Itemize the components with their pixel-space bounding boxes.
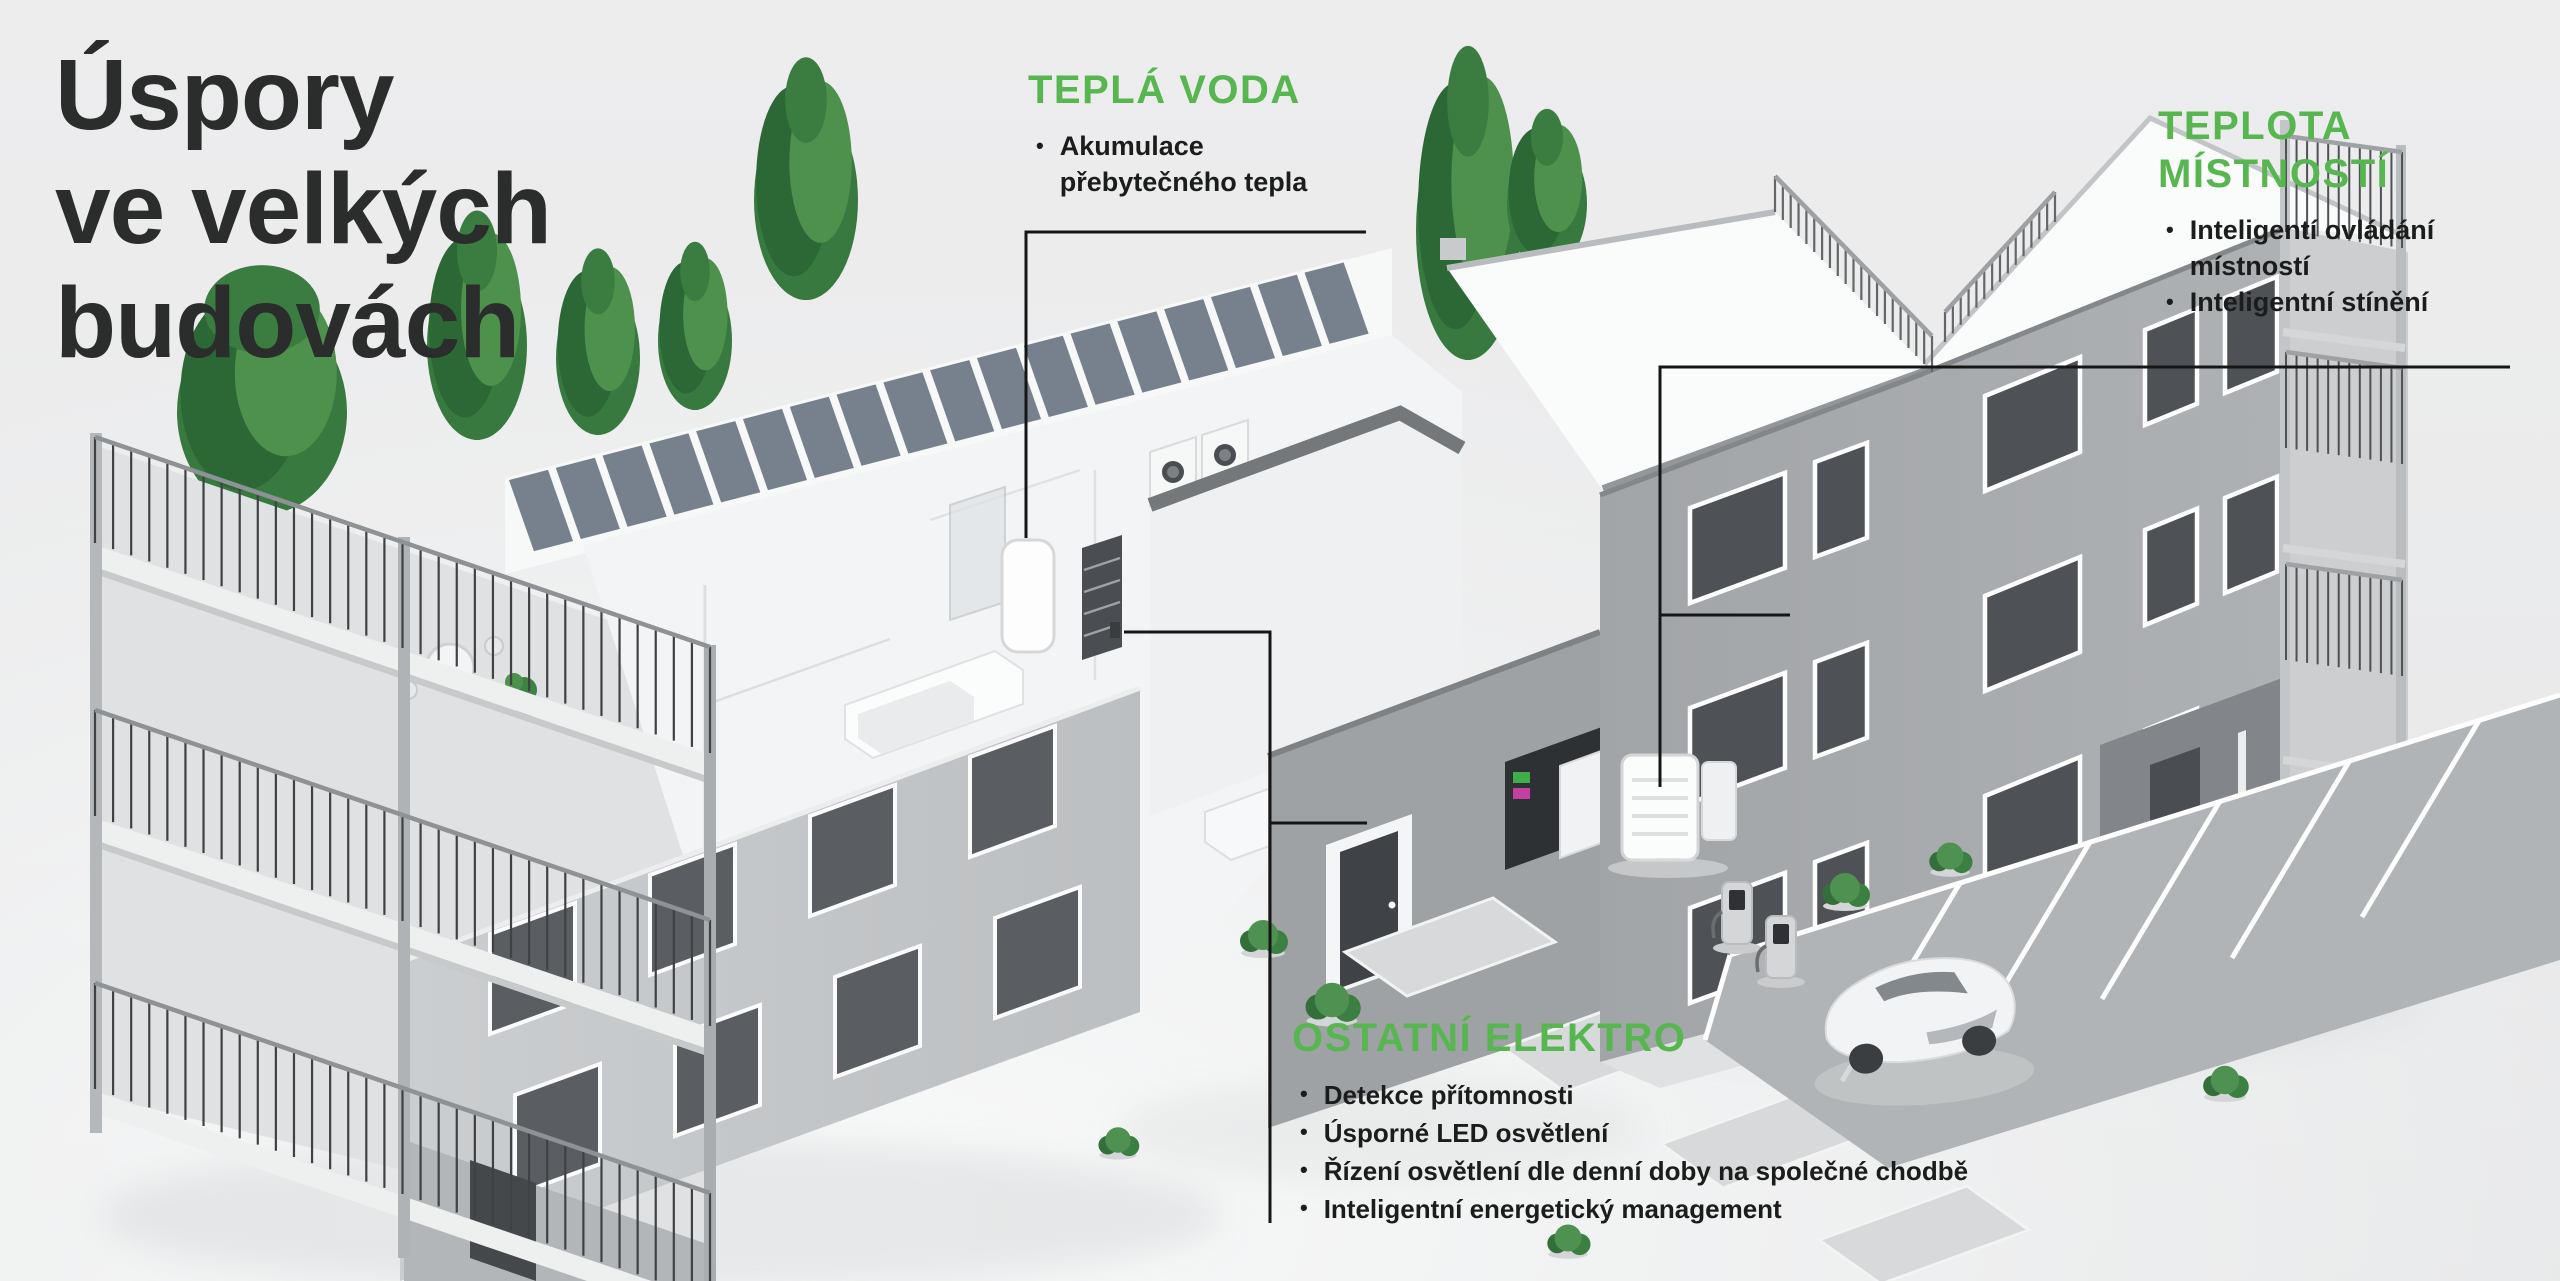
callout-other-electro: OSTATNÍ ELEKTRO Detekce přítomnosti Úspo… <box>1292 1014 2442 1228</box>
electrical-panel-green <box>1513 772 1530 783</box>
infographic-energy-savings: Úspory ve velkých budovách TEPLÁ VODA Ak… <box>0 0 2560 1281</box>
electrical-panel-magenta <box>1513 788 1530 799</box>
callout-other-electro-heading: OSTATNÍ ELEKTRO <box>1292 1014 2442 1062</box>
list-item: Úsporné LED osvětlení <box>1292 1114 2442 1152</box>
balcony-post <box>398 537 410 1258</box>
hot-water-tank <box>1002 540 1054 652</box>
roof-vent <box>1440 238 1466 260</box>
callout-room-temperature: TEPLOTA MÍSTNOSTÍ Inteligentí ovládání m… <box>2158 102 2558 320</box>
list-item: Inteligentní energetický management <box>1292 1190 2442 1228</box>
callout-other-electro-list: Detekce přítomnosti Úsporné LED osvětlen… <box>1292 1076 2442 1228</box>
callout-hot-water: TEPLÁ VODA Akumulace přebytečného tepla <box>1028 66 1388 200</box>
shower <box>950 487 1005 620</box>
callout-room-temperature-heading: TEPLOTA MÍSTNOSTÍ <box>2158 102 2498 198</box>
towel-radiator <box>1082 535 1122 660</box>
list-item: Inteligentní stínění <box>2158 284 2528 320</box>
list-item: Inteligentí ovládání místností <box>2158 212 2528 284</box>
callout-hot-water-list: Akumulace přebytečného tepla <box>1028 128 1328 200</box>
page-title: Úspory ve velkých budovách <box>55 38 551 380</box>
list-item: Detekce přítomnosti <box>1292 1076 2442 1114</box>
callout-room-temperature-list: Inteligentí ovládání místností Inteligen… <box>2158 212 2528 320</box>
callout-hot-water-heading: TEPLÁ VODA <box>1028 66 1388 114</box>
list-item: Akumulace přebytečného tepla <box>1028 128 1328 200</box>
list-item: Řízení osvětlení dle denní doby na spole… <box>1292 1152 2442 1190</box>
wall-device <box>1110 622 1120 638</box>
